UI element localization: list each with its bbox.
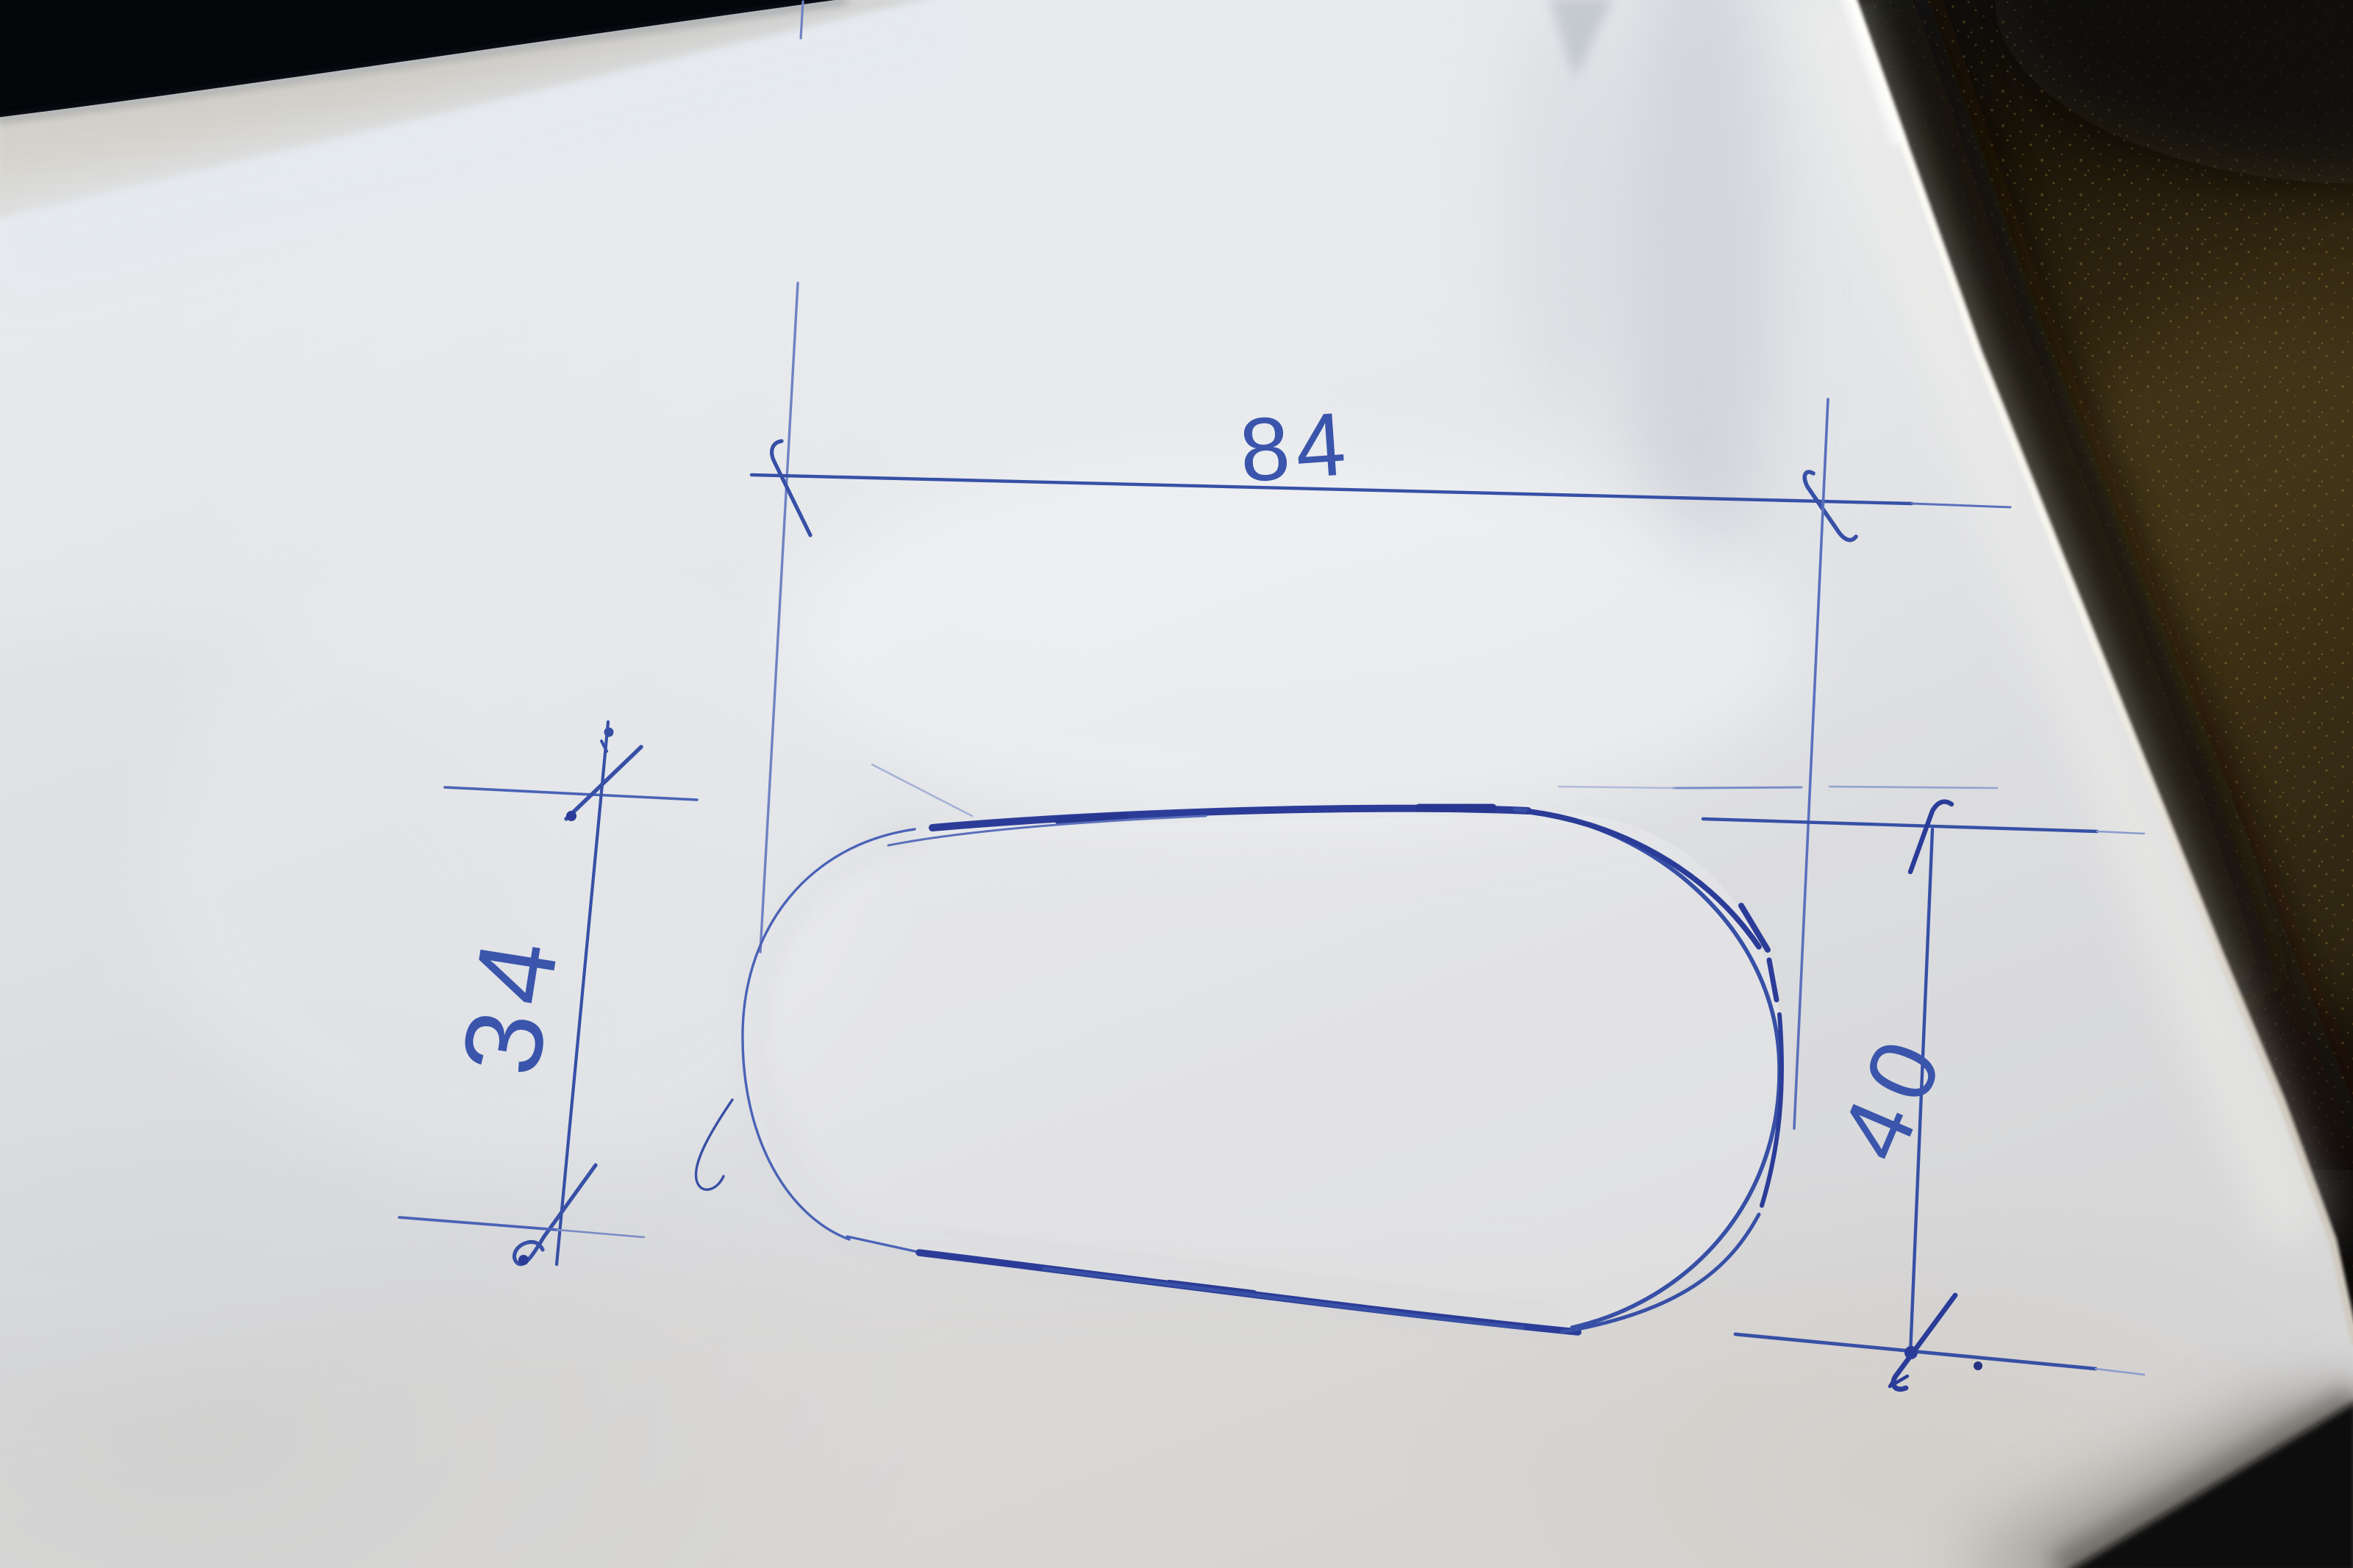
svg-text:84: 84	[1236, 393, 1354, 501]
svg-text:34: 34	[438, 922, 582, 1083]
